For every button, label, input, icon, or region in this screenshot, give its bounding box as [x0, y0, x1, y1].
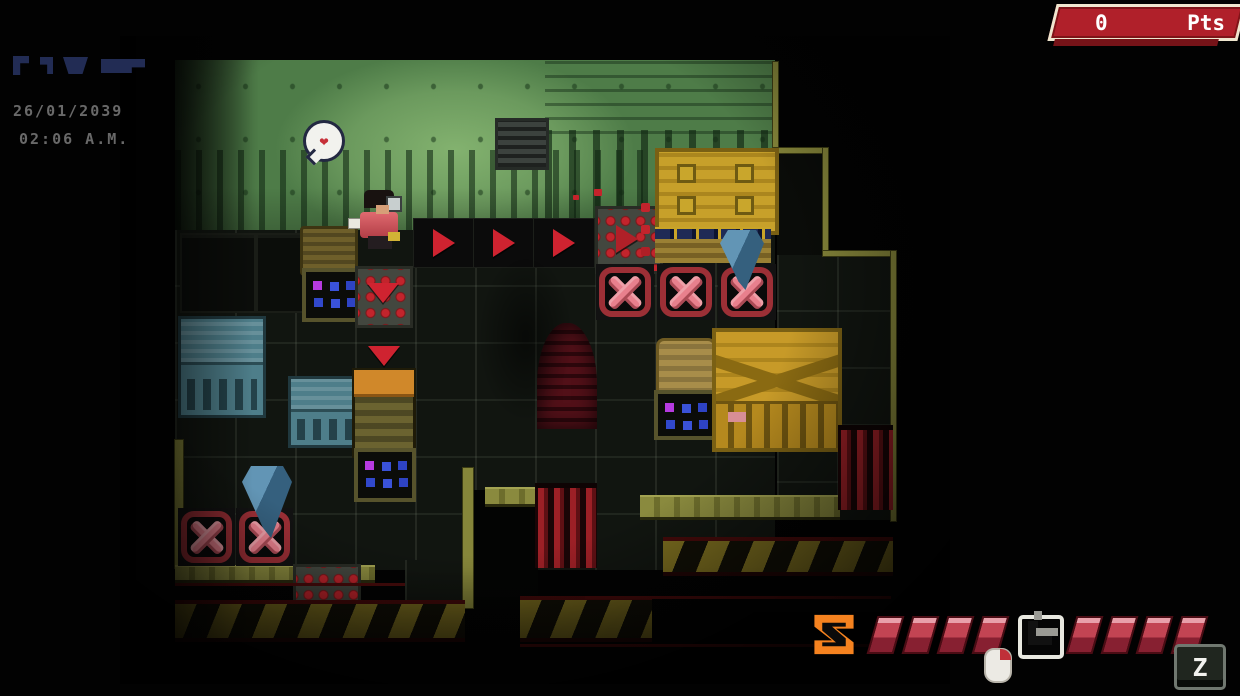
pit: [468, 490, 538, 610]
floor-dark-right-upper: [777, 150, 823, 255]
charge-pip: [937, 616, 975, 654]
bolt: [735, 196, 754, 215]
barrel-crate: [352, 368, 416, 458]
control-console: [302, 268, 360, 322]
floor-strip: [405, 560, 470, 608]
floor-line: [175, 583, 405, 586]
dark-crate: [180, 233, 256, 313]
wall-trim: [773, 62, 778, 152]
wall-trim: [773, 148, 828, 153]
mouse-button-highlight: [1000, 649, 1011, 660]
platform-small: [485, 487, 537, 507]
heart-icon: ❤: [319, 134, 328, 149]
sticker: [728, 412, 746, 422]
charge-pip: [1066, 616, 1104, 654]
wall-trim: [823, 148, 828, 256]
down-arrow-icon: [367, 283, 399, 303]
hazard-stripes: [175, 604, 465, 638]
speech-bubble: ❤: [303, 120, 345, 162]
keycap-label: Z: [1192, 653, 1207, 682]
control-console: [654, 390, 718, 440]
right-arrow-icon: [433, 229, 455, 257]
stud-panel-down: [355, 266, 413, 328]
charge-pip: [1136, 616, 1174, 654]
z-keycap: Z: [1174, 644, 1226, 690]
control-console: [354, 448, 416, 502]
right-arrow-icon: [616, 225, 638, 253]
floor-line: [585, 596, 891, 599]
player-character: [356, 190, 402, 252]
player-gadget: [388, 232, 400, 241]
player-face: [376, 205, 389, 214]
x-pad: [657, 264, 715, 320]
score-value: 0: [1095, 11, 1108, 35]
shadow: [478, 252, 573, 422]
crate-yellow-top: [655, 148, 779, 235]
crate-tan: [656, 338, 716, 396]
red-debris: [594, 189, 602, 196]
hazard-stripes: [663, 541, 893, 572]
wall-vent: [495, 118, 549, 170]
crate-teal: [288, 376, 362, 448]
charge-pip: [1101, 616, 1139, 654]
bolt: [677, 164, 696, 183]
bolt: [677, 196, 696, 215]
spike-row: [535, 483, 597, 568]
wall-rivets: [640, 203, 652, 261]
score-banner: 0 Pts: [1047, 4, 1240, 41]
game-screen: ❤ 0 Pts 26/01/2039 02:06 A.M. Z: [0, 0, 1240, 696]
time-display: 02:06 A.M.: [19, 130, 129, 148]
x-pad: [178, 508, 235, 566]
wall-trim-mid: [463, 468, 473, 608]
crate-yellow-large: [712, 328, 842, 452]
spike-row: [838, 425, 893, 510]
wall-trim: [823, 251, 895, 256]
charge-pip: [902, 616, 940, 654]
dark-crate: [256, 233, 304, 313]
charge-pip: [867, 616, 905, 654]
bolt: [735, 164, 754, 183]
mouse-icon: [984, 648, 1012, 683]
z-skill-icon: [810, 611, 858, 658]
date-display: 26/01/2039: [13, 102, 123, 120]
red-debris: [573, 195, 579, 200]
down-arrow: [368, 346, 400, 366]
score-unit: Pts: [1187, 11, 1225, 35]
game-viewport[interactable]: ❤: [0, 0, 1240, 696]
crate-teal-large: [178, 316, 266, 418]
x-pad: [596, 264, 654, 320]
lever-skill-icon: [1018, 615, 1064, 659]
conveyor-tile: [413, 218, 475, 268]
ledge: [640, 495, 840, 520]
hazard-stripes: [520, 600, 652, 638]
